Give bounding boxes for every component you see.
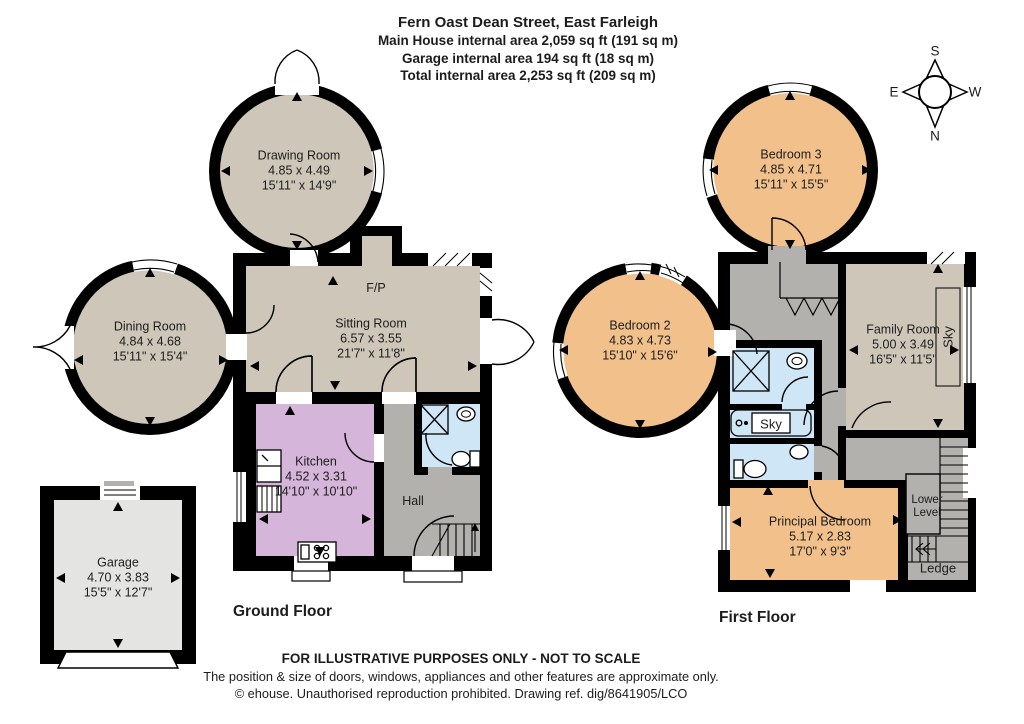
principal-bedroom-label: Principal Bedroom5.17 x 2.8317'0" x 9'3" bbox=[769, 515, 871, 560]
ledge-label: Ledge bbox=[920, 561, 956, 576]
sitting-room-label: Sitting Room6.57 x 3.5521'7" x 11'8" bbox=[335, 317, 407, 362]
kitchen-label: Kitchen4.52 x 3.3114'10" x 10'10" bbox=[275, 455, 357, 500]
area-line-main-house: Main House internal area 2,059 sq ft (19… bbox=[268, 32, 788, 50]
kitchen-step bbox=[292, 571, 330, 581]
family-room-label: Family Room5.00 x 3.4916'5" x 11'5" bbox=[866, 323, 940, 368]
bath-skylight-label: Sky bbox=[760, 417, 782, 432]
compass-west: W bbox=[969, 85, 982, 100]
lower-level-label: Lower Level bbox=[904, 494, 950, 520]
hall-label: Hall bbox=[402, 494, 424, 508]
approximation-note: The position & size of doors, windows, a… bbox=[101, 668, 821, 685]
compass-east: E bbox=[889, 85, 898, 100]
entrance-step bbox=[404, 571, 462, 582]
area-line-total: Total internal area 2,253 sq ft (209 sq … bbox=[268, 67, 788, 85]
compass-south: S bbox=[930, 44, 939, 59]
fireplace-label: F/P bbox=[366, 281, 385, 295]
compass-icon bbox=[903, 60, 967, 127]
area-line-garage: Garage internal area 194 sq ft (18 sq m) bbox=[268, 50, 788, 68]
disclaimer-line: FOR ILLUSTRATIVE PURPOSES ONLY - NOT TO … bbox=[101, 650, 821, 668]
compass-north: N bbox=[930, 129, 940, 144]
drawing-room-label: Drawing Room4.85 x 4.4915'11" x 14'9" bbox=[258, 149, 341, 194]
bedroom2-label: Bedroom 24.83 x 4.7315'10" x 15'6" bbox=[602, 319, 678, 364]
ground-floor-title: Ground Floor bbox=[233, 603, 332, 621]
plan-footer: FOR ILLUSTRATIVE PURPOSES ONLY - NOT TO … bbox=[101, 650, 821, 702]
dining-room-label: Dining Room4.84 x 4.6815'11" x 15'4" bbox=[113, 320, 188, 365]
plan-title: Fern Oast Dean Street, East Farleigh bbox=[268, 13, 788, 32]
copyright-line: © ehouse. Unauthorised reproduction proh… bbox=[101, 685, 821, 702]
fireplace-recess bbox=[362, 236, 392, 268]
floorplan-page: Fern Oast Dean Street, East Farleigh Mai… bbox=[0, 0, 1024, 724]
plan-header: Fern Oast Dean Street, East Farleigh Mai… bbox=[268, 13, 788, 85]
family-skylight-label: Sky bbox=[941, 326, 956, 348]
bedroom3-label: Bedroom 34.85 x 4.7115'11" x 15'5" bbox=[754, 148, 829, 193]
garage-label: Garage4.70 x 3.8315'5" x 12'7" bbox=[84, 556, 153, 601]
bedroom3-doorway bbox=[768, 246, 806, 266]
first-floor-title: First Floor bbox=[719, 609, 796, 627]
